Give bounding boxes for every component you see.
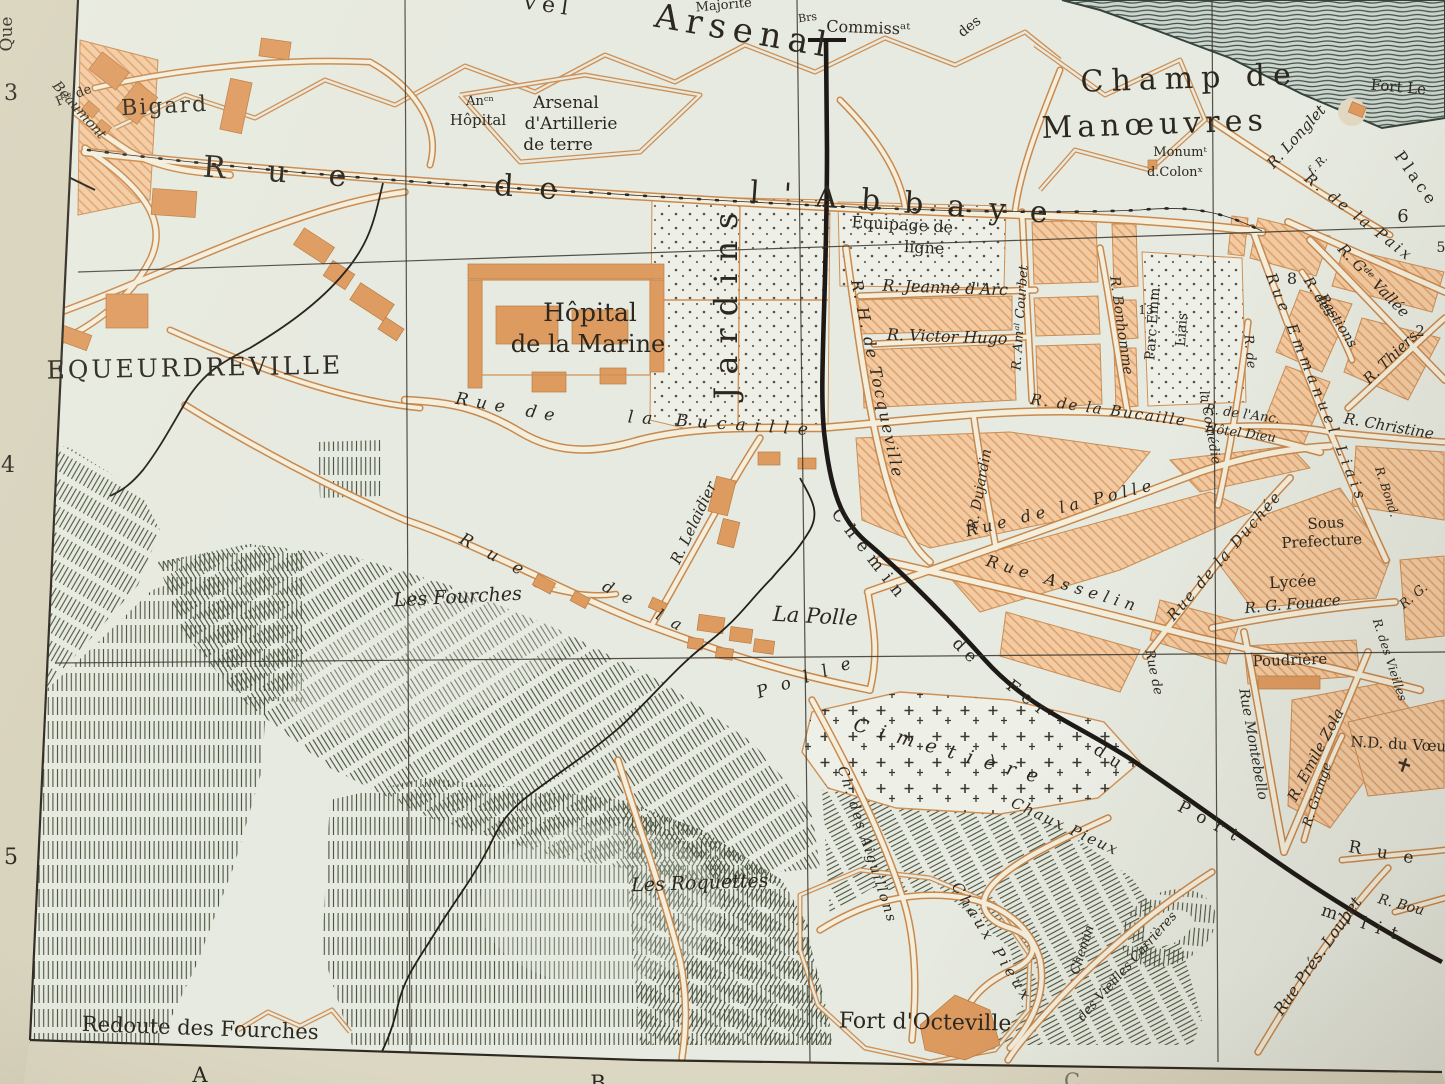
arsenal-artillerie-2-label: d'Artillerie (525, 114, 618, 134)
grid-letter-c-label: C (1064, 1069, 1080, 1084)
jardins-label: Jardins (707, 201, 745, 403)
fort-octeville-label: Fort d'Octeville (839, 1008, 1012, 1036)
grid-num-4-label: 4 (1, 453, 15, 478)
parc-liais-label: Liais (1173, 312, 1191, 347)
monument-label: Monumᵗ (1153, 145, 1207, 160)
equipage-2-label: ligne (904, 237, 945, 258)
ancien-hopital-2-label: Hôpital (450, 111, 506, 129)
rue-abbaye-2-label: de (493, 168, 584, 209)
blocknum-13-label: 13 (1138, 303, 1153, 317)
bigard-label: Bigard (121, 92, 209, 122)
poudriere-label: Poudrière (1252, 650, 1327, 671)
sous-prefecture-1-label: Sous (1307, 513, 1345, 533)
lycee-label: Lycée (1269, 571, 1317, 592)
grid-letter-a-label: A (191, 1063, 208, 1084)
arsenal-artillerie-3-label: de terre (523, 135, 593, 155)
quai-margin-label: Que (0, 17, 17, 52)
ancien-hopital-1-label: Anᶜⁿ (465, 94, 494, 109)
commissariat-label: Commissᵃᵗ (826, 17, 911, 39)
grid-num-3-label: 3 (4, 81, 18, 106)
la-polle-label: La Polle (771, 602, 858, 630)
grid-letter-b-label: B (590, 1071, 605, 1084)
hopital-marine-2-label: de la Marine (511, 330, 666, 358)
map-canvas: Que345ABCvelArsenalMajoritéBrsCommissᵃᵗd… (0, 0, 1445, 1084)
brs-label: Brs (797, 10, 818, 26)
blocknum-6-label: 6 (1397, 206, 1408, 227)
grid-num-5-label: 5 (4, 845, 18, 870)
hopital-marine-1-label: Hôpital (543, 298, 637, 327)
equeurdreville-label: EQUEURDREVILLE (46, 350, 343, 384)
vintage-map-page: Que345ABCvelArsenalMajoritéBrsCommissᵃᵗd… (0, 0, 1445, 1084)
arsenal-artillerie-1-label: Arsenal (532, 93, 599, 113)
blocknum-5-label: 5 (1437, 240, 1445, 256)
colonnes-label: d.Colonˣ (1147, 165, 1203, 180)
blocknum-8-label: 8 (1287, 269, 1297, 288)
